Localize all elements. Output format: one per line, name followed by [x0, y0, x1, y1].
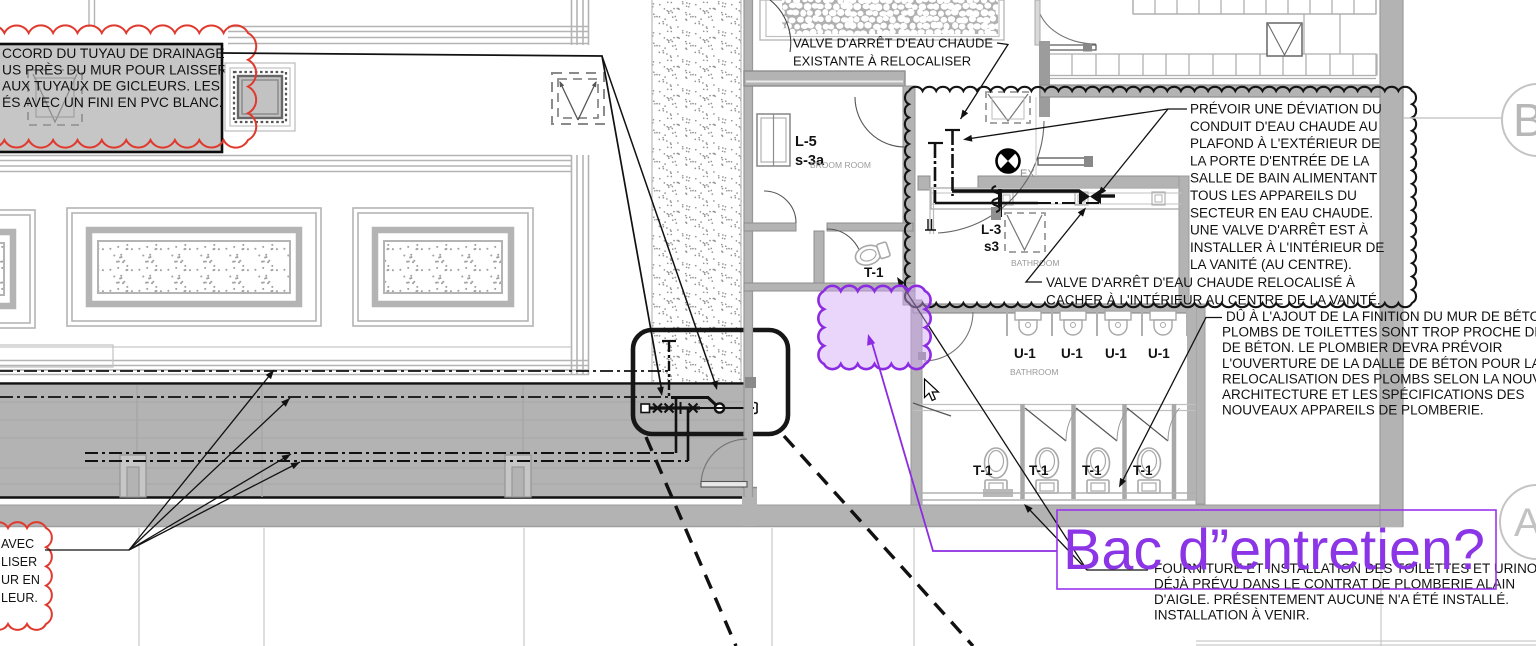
svg-text:L-3: L-3: [981, 222, 1002, 237]
svg-text:U-1: U-1: [1014, 346, 1036, 361]
svg-text:ÉS AVEC UN FINI EN PVC BLANC.: ÉS AVEC UN FINI EN PVC BLANC.: [2, 94, 223, 110]
svg-text:T-1: T-1: [1029, 463, 1049, 478]
svg-text:BATHROOM: BATHROOM: [1011, 258, 1059, 268]
svg-text:EXISTANTE À RELOCALISER: EXISTANTE À RELOCALISER: [793, 54, 971, 69]
svg-text:SECTEUR EN EAU CHAUDE.: SECTEUR EN EAU CHAUDE.: [1190, 205, 1373, 220]
svg-text:LA VANITÉ (AU CENTRE).: LA VANITÉ (AU CENTRE).: [1190, 257, 1352, 272]
svg-text:D'AIGLE. PRÉSENTEMENT AUCUNE N: D'AIGLE. PRÉSENTEMENT AUCUNE N'A ÉTÉ INS…: [1154, 592, 1509, 607]
svg-text:B: B: [1513, 94, 1536, 146]
svg-text:DÛ À L'AJOUT DE LA FINITION DU: DÛ À L'AJOUT DE LA FINITION DU MUR DE BÉ…: [1226, 309, 1536, 324]
svg-text:DE BÉTON. LE PLOMBIER DEVRA PR: DE BÉTON. LE PLOMBIER DEVRA PRÉVOIR: [1222, 340, 1503, 355]
svg-text:A: A: [1514, 501, 1536, 545]
svg-text:AVEC: AVEC: [1, 537, 34, 551]
svg-text:U-1: U-1: [1061, 346, 1083, 361]
svg-text:US PRÈS DU MUR POUR LAISSER: US PRÈS DU MUR POUR LAISSER: [2, 61, 227, 77]
svg-text:L-5: L-5: [795, 134, 817, 150]
svg-text:CACHER À L'INTÉRIEUR AU CENTRE: CACHER À L'INTÉRIEUR AU CENTRE DE LA VAN…: [1046, 293, 1381, 308]
svg-text:T-1: T-1: [864, 265, 884, 280]
svg-text:T-1: T-1: [1082, 463, 1102, 478]
svg-text:TOUS LES APPAREILS DU: TOUS LES APPAREILS DU: [1190, 188, 1357, 203]
svg-text:U-1: U-1: [1105, 346, 1127, 361]
svg-text:L'OUVERTURE DE LA DALLE DE BÉT: L'OUVERTURE DE LA DALLE DE BÉTON POUR LA: [1222, 356, 1536, 371]
svg-text:AUX TUYAUX DE GICLEURS. LES: AUX TUYAUX DE GICLEURS. LES: [2, 79, 220, 94]
svg-text:INSTALLER À L'INTÉRIEUR DE: INSTALLER À L'INTÉRIEUR DE: [1190, 240, 1384, 255]
svg-text:CCORD DU TUYAU DE DRAINAGE: CCORD DU TUYAU DE DRAINAGE: [2, 46, 225, 61]
svg-text:UNE VALVE D'ARRÊT EST À: UNE VALVE D'ARRÊT EST À: [1190, 223, 1368, 238]
svg-text:PLOMBS DE TOILETTES SONT TROP: PLOMBS DE TOILETTES SONT TROP PROCHE DE: [1222, 325, 1536, 340]
svg-text:BROOM ROOM: BROOM ROOM: [810, 160, 871, 170]
svg-text:T-1: T-1: [973, 463, 993, 478]
svg-text:T-1: T-1: [1133, 463, 1153, 478]
svg-text:NOUVEAUX APPAREILS DE PLOMBERI: NOUVEAUX APPAREILS DE PLOMBERIE.: [1222, 403, 1484, 418]
svg-text:VALVE D'ARRÊT D'EAU CHAUDE RE: VALVE D'ARRÊT D'EAU CHAUDE RELOCALISÉ À: [1046, 275, 1355, 290]
svg-text:LEUR.: LEUR.: [1, 591, 38, 605]
svg-text:INSTALLATION À VENIR.: INSTALLATION À VENIR.: [1154, 608, 1310, 623]
svg-text:ARCHITECTURE ET LES SPÉCIFICAT: ARCHITECTURE ET LES SPÉCIFICATIONS DES: [1222, 387, 1525, 402]
svg-text:BATHROOM: BATHROOM: [1010, 367, 1058, 377]
svg-text:UR EN: UR EN: [1, 573, 40, 587]
svg-text:U-1: U-1: [1148, 346, 1170, 361]
svg-text:RELOCALISATION DES PLOMBS SELO: RELOCALISATION DES PLOMBS SELON LA NOUV: [1222, 371, 1536, 386]
svg-text:PRÉVOIR UNE DÉVIATION DU: PRÉVOIR UNE DÉVIATION DU: [1190, 102, 1382, 117]
svg-text:Bac d”entretien?: Bac d”entretien?: [1063, 518, 1485, 582]
svg-text:LISER: LISER: [1, 555, 37, 569]
svg-text:SALLE DE BAIN ALIMENTANT: SALLE DE BAIN ALIMENTANT: [1190, 171, 1377, 186]
svg-text:PLAFOND À L'EXTÉRIEUR DE: PLAFOND À L'EXTÉRIEUR DE: [1190, 136, 1380, 151]
svg-text:CONDUIT D'EAU CHAUDE AU: CONDUIT D'EAU CHAUDE AU: [1190, 119, 1378, 134]
svg-text:s3: s3: [984, 239, 1000, 254]
svg-text:VALVE D'ARRÊT D'EAU CHAUDE: VALVE D'ARRÊT D'EAU CHAUDE: [793, 36, 993, 51]
svg-text:LA PORTE D'ENTRÉE DE LA: LA PORTE D'ENTRÉE DE LA: [1190, 153, 1369, 168]
svg-text:EX: EX: [1020, 168, 1035, 180]
